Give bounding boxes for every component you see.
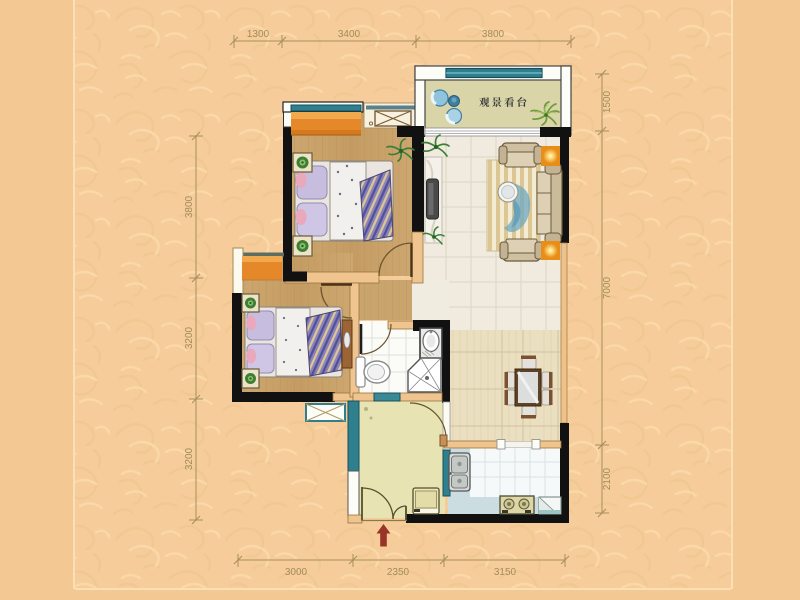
svg-text:1300: 1300 xyxy=(247,29,270,40)
svg-text:3150: 3150 xyxy=(494,567,517,578)
svg-text:7000: 7000 xyxy=(602,276,613,299)
svg-text:3200: 3200 xyxy=(184,326,195,349)
svg-text:3800: 3800 xyxy=(482,29,505,40)
svg-text:3000: 3000 xyxy=(285,567,308,578)
svg-text:2100: 2100 xyxy=(602,467,613,490)
svg-text:3800: 3800 xyxy=(184,195,195,218)
svg-text:3400: 3400 xyxy=(338,29,361,40)
svg-text:3200: 3200 xyxy=(184,447,195,470)
svg-text:2350: 2350 xyxy=(387,567,410,578)
svg-text:1500: 1500 xyxy=(602,90,613,113)
